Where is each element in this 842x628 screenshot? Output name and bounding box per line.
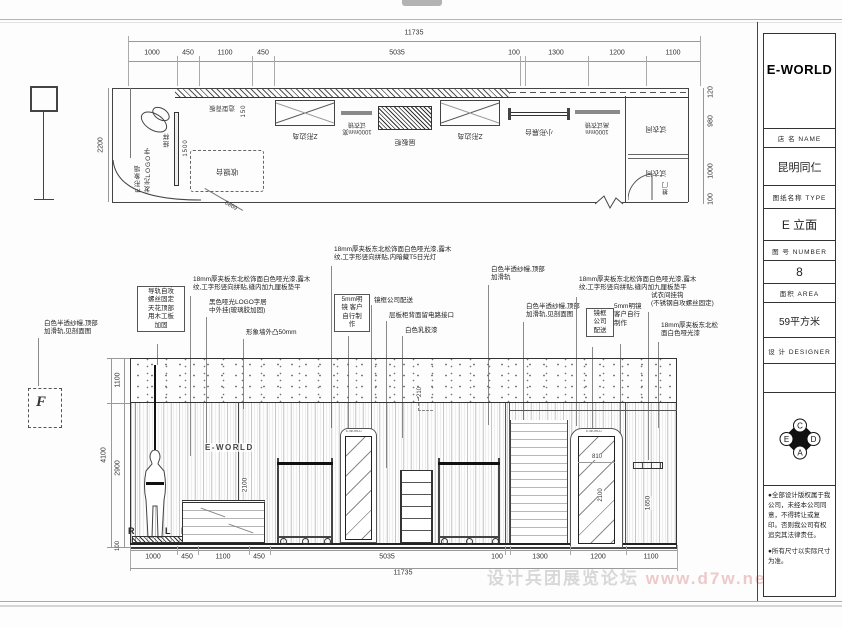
elev-dim: 1300 — [532, 554, 548, 561]
titleblock-type-label: 图纸名称 TYPE — [763, 185, 836, 209]
dimension-note: ●所有尺寸以实际尺寸为准。 — [768, 547, 831, 567]
dim-mirror2-h: 2100 — [598, 487, 604, 502]
plan-mirror-1 — [341, 111, 372, 115]
plan-dim: 1100 — [665, 50, 680, 57]
plan-dim: 450 — [182, 50, 194, 57]
annotation-wall-protrude: 形象墙外凸50mm — [246, 329, 322, 337]
plan-dim: 1100 — [217, 50, 232, 57]
titleblock-area-value: 59平方米 — [763, 302, 836, 338]
dim-left-base: 100 — [115, 541, 121, 551]
plan-wall-dashed — [510, 89, 688, 98]
mirror-1-logo: E-WORLD — [346, 430, 362, 433]
elev-dim: 1100 — [215, 554, 230, 561]
plan-dim: 450 — [257, 50, 269, 57]
shelf-unit — [400, 470, 433, 543]
plan-small-stand — [508, 112, 570, 116]
elevation-view: R L D E-WORLD 2100 E-WORLD 210 — [0, 350, 760, 590]
titleblock-number-value: 8 — [763, 260, 836, 284]
elev-dim: 450 — [253, 554, 265, 561]
plan-dim-right: 120 — [708, 86, 715, 98]
brand-logo: E-WORLD — [767, 62, 833, 77]
hanger-wire — [154, 365, 156, 455]
wall-logo: E-WORLD — [205, 443, 254, 452]
annotation-plywood-1: 18mm厚夹板东北松饰面白色哑光漆,露木 纹,工字形竖向拼贴,缝内加九厘板垫平 — [193, 276, 327, 293]
slat-panel — [510, 420, 568, 543]
plan-label-door: 推门 — [662, 181, 671, 195]
dim-right-h: 1650 — [645, 496, 652, 510]
dim-left-top: 1100 — [115, 372, 122, 387]
mirror-2-logo: E-WORLD — [586, 430, 602, 433]
annotation-gauze-left: 白色半透纱幔,顶部 加滑轨,见剖面图 — [44, 320, 114, 337]
annotation-frame-delivery-2: 镜框 公司 配送 — [586, 308, 614, 337]
annotation-frame-delivery-1: 镜框公司配送 — [374, 297, 430, 305]
logo-letter-right: D — [810, 435, 816, 444]
plan-label-z2: Z形边岛 — [457, 131, 482, 139]
plan-dim: 1000 — [144, 50, 160, 57]
plan-label-cashier: 收银台 — [216, 167, 239, 176]
annotation-plywood-t5: 18mm厚夹板东北松饰面白色哑光漆,露木 纹,工字形竖向拼贴,内暗藏T5日光灯 — [334, 246, 468, 263]
elev-dim-total: 11735 — [394, 570, 413, 577]
page-bottom-border-2 — [0, 605, 842, 607]
company-diamond-logo: C E D A — [778, 417, 822, 461]
window-letter-r: R — [128, 526, 135, 536]
plan-label-fitting-1: 试衣间 — [646, 124, 667, 132]
window-letter-l: L — [165, 526, 171, 536]
titleblock-notes-cell: ●全部设计版权属于我公司，未经本公司同意，不得转让或复印。否则我公司有权追究其法… — [763, 485, 836, 597]
plan-sign-post — [30, 86, 58, 112]
plan-view: 11735 1000 450 1100 450 5035 100 1300 12… — [0, 0, 760, 240]
logo-letter-top: C — [797, 422, 803, 431]
plan-dim-right: 100 — [708, 193, 715, 205]
annotation-shelf-outlet: 层板柜背面留电路接口 — [389, 312, 479, 320]
annotation-rail: 导轨自攻 螺丝固定 天花顶部 用木工板 加固 — [137, 286, 185, 332]
logo-letter-left: E — [783, 435, 788, 444]
annotation-plywood-3: 18mm厚夹板东北松 面白色哑光漆 — [661, 322, 743, 339]
elev-dim: 450 — [181, 554, 193, 561]
dim-left-total: 4100 — [101, 447, 108, 463]
plan-wall-hatch — [175, 89, 510, 98]
elevation-ceiling-band — [131, 359, 676, 403]
annotation-white-paint: 白色乳胶漆 — [405, 327, 451, 335]
plan-door-arc — [628, 172, 654, 200]
plan-break-mark — [595, 194, 625, 210]
annotation-mirror-client-2: 5mm明镜 客户自行 制作 — [614, 303, 650, 328]
plan-dim-diag: 6980 — [224, 198, 239, 211]
cad-sheet: 11735 1000 450 1100 450 5035 100 1300 12… — [0, 0, 842, 628]
plan-label-mirror-2: 1000mm 高试衣镜 — [585, 120, 609, 134]
plan-label-hang: 挂样 — [163, 133, 173, 148]
page-bottom-border — [0, 601, 842, 602]
logo-letter-bottom: A — [797, 449, 803, 458]
titleblock-number-label: 图 号 NUMBER — [763, 240, 836, 261]
titleblock-designer-value — [763, 363, 836, 393]
elev-dim: 1000 — [145, 554, 161, 561]
elev-dim: 100 — [491, 554, 503, 561]
plan-hang-wall — [174, 112, 179, 186]
watermark-cn: 设计兵团展览论坛 — [487, 569, 639, 588]
plan-dim: 100 — [508, 50, 520, 57]
titleblock-area-label: 面积 AREA — [763, 283, 836, 303]
titleblock-logo-cell: C E D A — [763, 392, 836, 486]
mirror-2 — [578, 436, 615, 544]
mirror-1 — [345, 436, 372, 540]
annotation-mirror-client-1: 5mm明 镜 客户 自行制 作 — [334, 294, 370, 332]
plan-shelf — [378, 106, 432, 130]
elev-dim: 5035 — [379, 554, 395, 561]
dim-mirror2-w: 810 — [591, 454, 603, 460]
plan-label-small-stand: 小形展台 — [525, 127, 553, 135]
elev-dim: 1200 — [590, 554, 606, 561]
plan-label-mirror-1: 1000mm宽 试衣镜 — [342, 120, 371, 134]
titleblock-designer-label: 设 计 DESIGNER — [763, 337, 836, 364]
annotation-plywood-2: 18mm厚夹板东北松饰面白色哑光漆,露木 纹,工字形竖向拼贴,缝内加九厘板垫平 — [579, 276, 713, 293]
plan-dim: 5035 — [389, 50, 405, 57]
titleblock-brand-cell: E-WORLD — [763, 33, 836, 129]
plan-z-island-2 — [440, 100, 500, 126]
annotation-logo-letters: 黑色哑光LOGO字居 中外挂(玻璃胶加固) — [209, 299, 293, 316]
titleblock-type-value: E 立面 — [763, 208, 836, 241]
titleblock-store-value: 昆明同仁 — [763, 147, 836, 186]
titleblock-left-border — [757, 22, 758, 601]
copyright-note: ●全部设计版权属于我公司，未经本公司同意，不得转让或复印。否则我公司有权追究其法… — [768, 491, 831, 541]
plan-label-shelf: 层板柜 — [395, 137, 416, 145]
elev-dim: 1100 — [643, 554, 658, 561]
titleblock-store-label: 店 名 NAME — [763, 128, 836, 148]
annotation-gauze-mid: 白色半透纱幔,顶部 加滑轨 — [491, 266, 567, 283]
low-cabinet — [182, 500, 265, 543]
plan-dim-left: 2200 — [98, 137, 105, 153]
plan-dim-total: 11735 — [405, 30, 424, 37]
plan-dim: 1200 — [609, 50, 625, 57]
plan-dim-back-panel: 150 — [241, 104, 247, 117]
plan-z-island-1 — [275, 100, 335, 126]
plan-dim-hang: 1500 — [183, 139, 189, 156]
annotation-hook: 试衣间挂钩 (不锈钢自攻螺丝固定) — [651, 292, 751, 309]
plan-label-z1: Z形边岛 — [292, 131, 317, 139]
plan-dim: 1300 — [548, 50, 564, 57]
dim-step: 210 — [417, 387, 423, 397]
dim-left-mid: 2900 — [115, 460, 122, 476]
dim-cabinet: 2100 — [242, 478, 249, 492]
plan-label-back-panel: 造型背板 — [209, 104, 235, 111]
mannequin — [142, 450, 168, 538]
hook-bar — [633, 462, 663, 469]
plan-mirror-2 — [575, 110, 620, 114]
plan-dim-right: 1000 — [708, 163, 715, 179]
plan-dim-right: 980 — [708, 115, 715, 127]
